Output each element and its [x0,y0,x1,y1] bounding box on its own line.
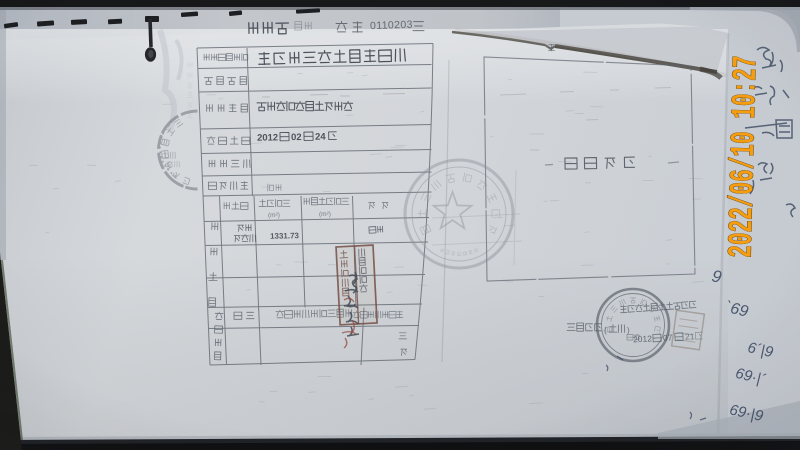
svg-text:1331.73: 1331.73 [270,231,300,241]
svg-text:2022/06/10 10:27: 2022/06/10 10:27 [723,55,766,258]
svg-text:0110203: 0110203 [370,19,413,32]
svg-text:): ) [627,326,630,335]
svg-text:07: 07 [663,332,673,342]
svg-text:2012: 2012 [633,333,653,344]
svg-text:2012: 2012 [257,132,278,143]
svg-text:21: 21 [685,331,695,341]
svg-text:(: ( [604,326,607,335]
svg-text:(m²): (m²) [268,212,280,219]
svg-text:24: 24 [315,132,326,143]
svg-text:02: 02 [291,132,302,143]
svg-text:(m²): (m²) [319,211,331,218]
